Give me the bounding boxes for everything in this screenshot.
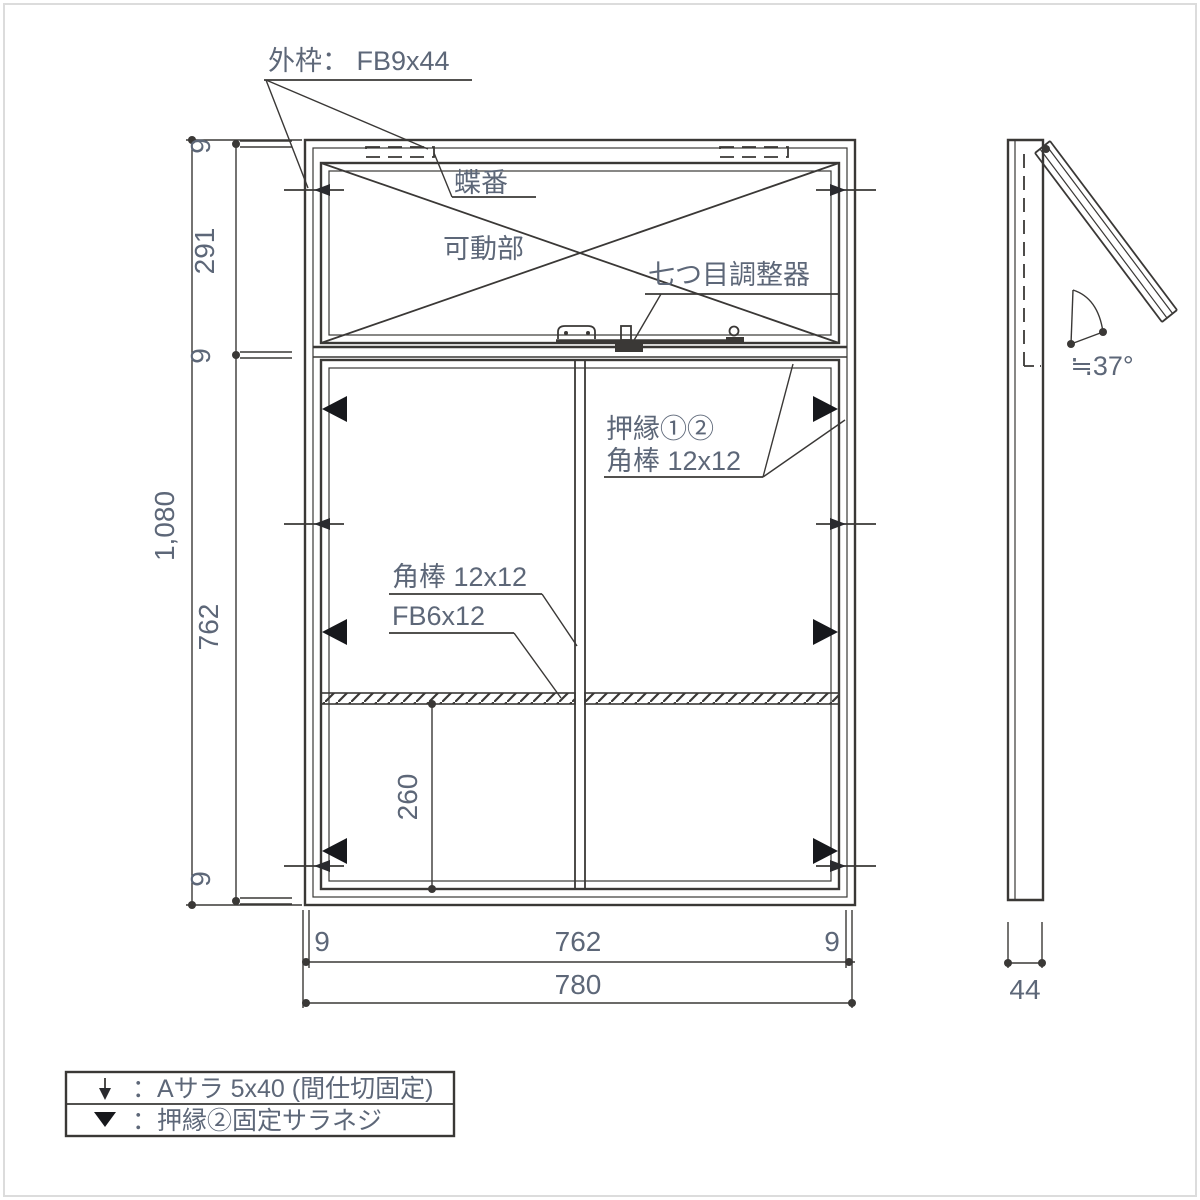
- outer-frame-rect: [305, 140, 855, 905]
- legend-row-1-text: ：Aサラ 5x40 (間仕切固定): [132, 1075, 433, 1103]
- outer-frame-leader-2: [266, 80, 428, 149]
- screw-arrow-icon: [816, 518, 876, 530]
- dim-partition-offset: 260: [392, 774, 423, 821]
- bead-screw-triangle-icon: [322, 619, 347, 645]
- flat-bar-label: FB6x12: [392, 601, 485, 631]
- dim-bottom-left-frame: 9: [314, 926, 330, 957]
- latch-post: [621, 326, 631, 340]
- bead-screw-triangle-icon: [813, 838, 838, 864]
- dim-overall-height: 1,080: [149, 491, 180, 561]
- latch-pin: [730, 327, 739, 336]
- down-arrow-icon: [99, 1078, 111, 1100]
- front-view: [284, 140, 876, 905]
- bead-screw-triangle-icon: [813, 619, 838, 645]
- side-view: ≒37° 44: [1004, 140, 1177, 1005]
- bead-label-line1: 押縁①②: [606, 414, 714, 444]
- screw-arrow-icon: [284, 184, 344, 196]
- bead-screw-triangle-icon: [322, 838, 347, 864]
- dim-lower-opening: 762: [193, 604, 224, 651]
- movable-part-label: 可動部: [443, 234, 524, 264]
- bead-screw-triangle-icon: [322, 396, 347, 422]
- outer-frame-label: 外枠： FB9x44: [268, 46, 450, 76]
- latch-block: [615, 341, 643, 352]
- drawing-page: 外枠： FB9x44 蝶番 可動部 七つ目調整器 押縁①② 角棒 12x12 角…: [0, 0, 1200, 1200]
- partition-dimension: 260: [392, 700, 436, 893]
- screw-arrow-icon: [816, 860, 876, 872]
- bead-label-line2: 角棒 12x12: [606, 446, 741, 476]
- square-bar-label: 角棒 12x12: [392, 562, 527, 592]
- cross-brace-lines: [321, 163, 839, 343]
- dim-overall-width: 780: [555, 969, 602, 1000]
- bead-screw-triangle-icon: [813, 396, 838, 422]
- dim-open-angle: ≒37°: [1070, 351, 1133, 381]
- dim-bottom-inner-width: 762: [555, 926, 602, 957]
- flat-bar-hatched-member-right: [585, 693, 839, 704]
- dim-middle-rail: 9: [185, 348, 216, 364]
- flat-bar-hatched-member-left: [321, 693, 575, 704]
- latch-pin-base: [726, 337, 744, 342]
- side-depth-dimension: 44: [1004, 922, 1046, 1005]
- dim-side-depth: 44: [1009, 974, 1040, 1005]
- screw-arrow-icon: [816, 184, 876, 196]
- left-dimensions: 9 291 9 1,080 762 9: [149, 136, 302, 909]
- outer-frame-leader-1: [266, 80, 308, 188]
- screw-arrow-icon: [284, 860, 344, 872]
- legend-row-2-text: ：押縁②固定サラネジ: [132, 1107, 382, 1135]
- square-bar-leader: [542, 594, 577, 646]
- adjuster-label: 七つ目調整器: [648, 260, 810, 290]
- technical-drawing: 外枠： FB9x44 蝶番 可動部 七つ目調整器 押縁①② 角棒 12x12 角…: [0, 0, 1200, 1200]
- open-flap: [1035, 141, 1177, 322]
- bottom-dimensions: 9 762 9 780: [302, 910, 856, 1008]
- annotations: 外枠： FB9x44 蝶番 可動部 七つ目調整器 押縁①② 角棒 12x12 角…: [264, 46, 845, 698]
- dim-bottom-right-frame: 9: [824, 926, 840, 957]
- hinge-leader: [434, 153, 452, 197]
- dim-frame-top: 9: [185, 138, 216, 154]
- hinge-label: 蝶番: [454, 168, 508, 198]
- center-mullion: [575, 360, 585, 889]
- photo-border: [4, 4, 1196, 1196]
- legend: ：Aサラ 5x40 (間仕切固定) ：押縁②固定サラネジ: [66, 1072, 454, 1136]
- angle-indicator: [1067, 290, 1107, 348]
- filled-triangle-icon: [94, 1112, 116, 1127]
- dim-frame-bottom: 9: [185, 871, 216, 887]
- screw-arrow-icon: [284, 518, 344, 530]
- side-frame-bar: [1008, 140, 1043, 900]
- dim-upper-opening: 291: [189, 228, 220, 275]
- flat-bar-leader: [514, 633, 561, 698]
